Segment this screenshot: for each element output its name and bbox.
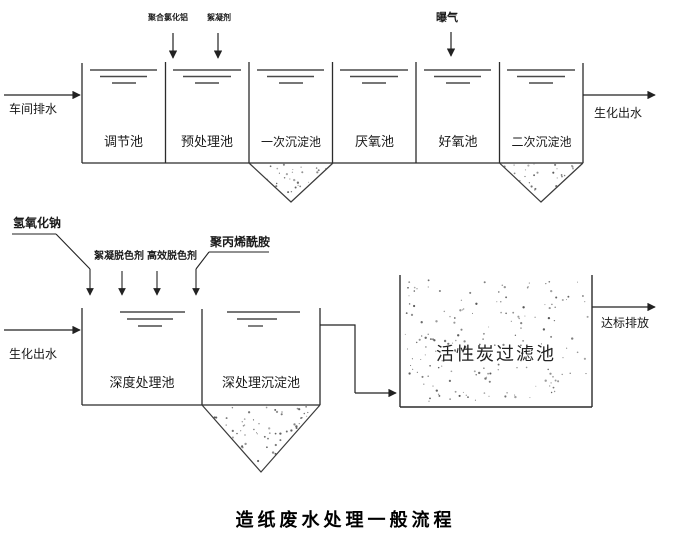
bottom-water-symbols (120, 312, 300, 326)
label-pam-dosing: 聚丙烯酰胺 (210, 236, 270, 249)
label-outflow-standard-discharge: 达标排放 (601, 317, 649, 330)
tank-label-aerobic: 好氧池 (416, 136, 500, 150)
process-flow-diagram: 聚合氯化铝 絮凝剂 曝气 车间排水 生化出水 调节池 预处理池 一次沉淀池 厌氧… (0, 0, 691, 541)
tank-label-regulating: 调节池 (82, 136, 165, 150)
label-aeration: 曝气 (432, 12, 462, 24)
tank-label-primary-sedimentation: 一次沉淀池 (249, 136, 333, 149)
label-flocculant-dosing: 絮凝剂 (200, 14, 238, 23)
top-flow-arrows (4, 32, 655, 95)
tank-label-activated-carbon-filter: 活性炭过滤池 (400, 345, 592, 365)
stipple-texture (214, 164, 589, 462)
tank-label-advanced-treatment: 深度处理池 (82, 377, 202, 391)
diagram-title: 造纸废水处理一般流程 (0, 511, 691, 531)
label-inflow-biochemical: 生化出水 (9, 348, 57, 361)
label-inflow-workshop: 车间排水 (9, 103, 57, 116)
label-naoh-dosing: 氢氧化钠 (13, 217, 61, 230)
label-high-eff-decolorant-dosing: 高效脱色剂 (147, 251, 197, 262)
tank-label-anaerobic: 厌氧池 (333, 136, 416, 150)
label-pac-dosing: 聚合氯化铝 (144, 14, 192, 23)
tank-label-secondary-sedimentation: 二次沉淀池 (500, 136, 583, 149)
top-sludge-funnels (249, 163, 583, 202)
tank-label-pretreatment: 预处理池 (165, 136, 249, 150)
diagram-lines (0, 0, 691, 541)
bottom-sludge-funnel (202, 405, 320, 472)
label-floc-decolorant-dosing: 絮凝脱色剂 (94, 251, 144, 262)
carbon-filter-walls (400, 275, 592, 407)
tank-label-advanced-sedimentation: 深处理沉淀池 (202, 377, 320, 391)
label-outflow-biochemical: 生化出水 (594, 107, 642, 120)
